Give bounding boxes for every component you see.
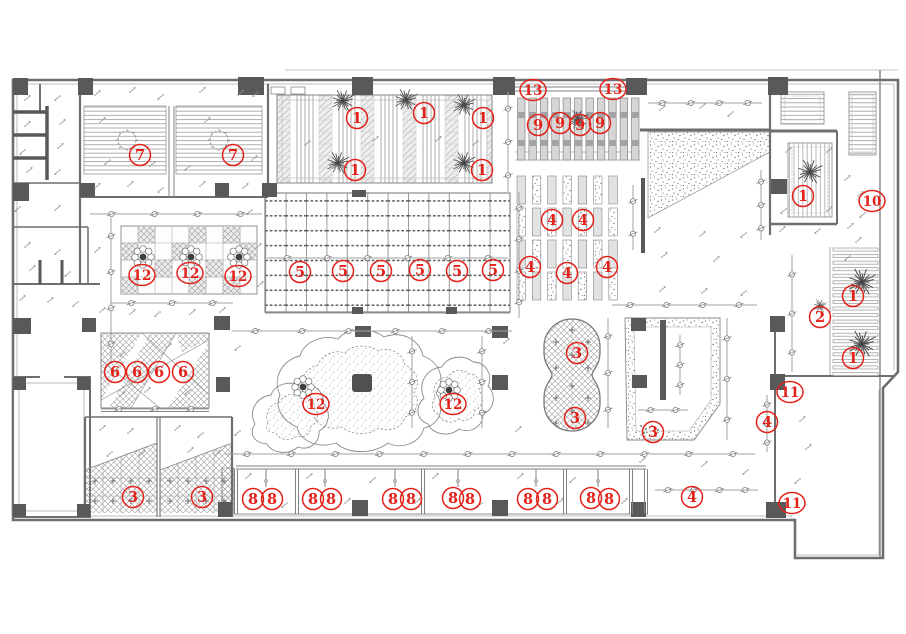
callout-10: 10	[859, 191, 885, 212]
svg-text:8: 8	[465, 491, 475, 508]
svg-text:5: 5	[376, 263, 386, 280]
callout-12: 12	[129, 265, 155, 286]
svg-text:8: 8	[586, 490, 596, 507]
svg-text:1: 1	[477, 162, 487, 179]
svg-text:4: 4	[547, 212, 557, 229]
svg-text:12: 12	[444, 397, 463, 413]
svg-text:2: 2	[815, 309, 825, 326]
elevator-shaft	[13, 373, 90, 517]
grid-ceiling-5	[265, 193, 510, 312]
svg-text:6: 6	[132, 364, 142, 381]
floor-plan-drawing: 7711111131399994444411012112121255555566…	[0, 0, 906, 634]
floor-plan-page: 7711111131399994444411012112121255555566…	[0, 0, 906, 634]
panel-1-striped-ceiling	[277, 95, 492, 183]
svg-text:9: 9	[533, 117, 543, 134]
svg-text:13: 13	[524, 83, 543, 99]
svg-text:1: 1	[350, 162, 360, 179]
svg-text:13: 13	[604, 82, 623, 98]
svg-text:9: 9	[555, 115, 565, 132]
svg-text:4: 4	[602, 259, 612, 276]
callout-13: 13	[520, 80, 546, 101]
callout-12: 12	[177, 263, 203, 284]
svg-text:5: 5	[488, 262, 498, 279]
svg-text:1: 1	[798, 188, 808, 205]
callout-11: 11	[779, 493, 805, 514]
svg-text:8: 8	[448, 490, 458, 507]
svg-text:3: 3	[197, 489, 207, 506]
svg-text:5: 5	[338, 263, 348, 280]
svg-text:3: 3	[572, 345, 582, 362]
svg-text:6: 6	[154, 364, 164, 381]
svg-text:6: 6	[110, 364, 120, 381]
svg-text:8: 8	[604, 491, 614, 508]
callout-12: 12	[303, 394, 329, 415]
svg-text:1: 1	[848, 288, 858, 305]
svg-text:12: 12	[307, 397, 326, 413]
svg-text:4: 4	[687, 489, 697, 506]
svg-text:3: 3	[648, 424, 658, 441]
svg-text:10: 10	[863, 194, 882, 210]
svg-text:4: 4	[578, 212, 588, 229]
svg-text:12: 12	[181, 266, 200, 282]
svg-text:8: 8	[406, 491, 416, 508]
svg-text:1: 1	[478, 110, 488, 127]
callout-13: 13	[600, 79, 626, 100]
svg-text:4: 4	[525, 259, 535, 276]
svg-text:11: 11	[781, 385, 800, 401]
svg-text:5: 5	[452, 263, 462, 280]
svg-text:12: 12	[133, 268, 152, 284]
callout-11: 11	[777, 382, 803, 403]
svg-text:9: 9	[575, 117, 585, 134]
svg-text:8: 8	[542, 491, 552, 508]
svg-text:8: 8	[248, 491, 258, 508]
svg-text:3: 3	[128, 489, 138, 506]
svg-text:1: 1	[848, 350, 858, 367]
svg-text:8: 8	[267, 491, 277, 508]
svg-text:8: 8	[326, 491, 336, 508]
svg-text:8: 8	[523, 491, 533, 508]
svg-text:5: 5	[295, 264, 305, 281]
callout-12: 12	[225, 266, 251, 287]
svg-text:8: 8	[388, 491, 398, 508]
svg-text:12: 12	[229, 269, 248, 285]
svg-text:1: 1	[419, 105, 429, 122]
svg-text:8: 8	[308, 491, 318, 508]
svg-text:3: 3	[570, 410, 580, 427]
svg-text:7: 7	[228, 147, 238, 164]
svg-text:4: 4	[562, 265, 572, 282]
svg-text:9: 9	[595, 115, 605, 132]
svg-text:11: 11	[783, 496, 802, 512]
svg-text:1: 1	[352, 110, 362, 127]
svg-text:4: 4	[762, 414, 772, 431]
svg-text:7: 7	[135, 147, 145, 164]
svg-text:5: 5	[415, 262, 425, 279]
callout-12: 12	[440, 394, 466, 415]
svg-text:6: 6	[178, 364, 188, 381]
